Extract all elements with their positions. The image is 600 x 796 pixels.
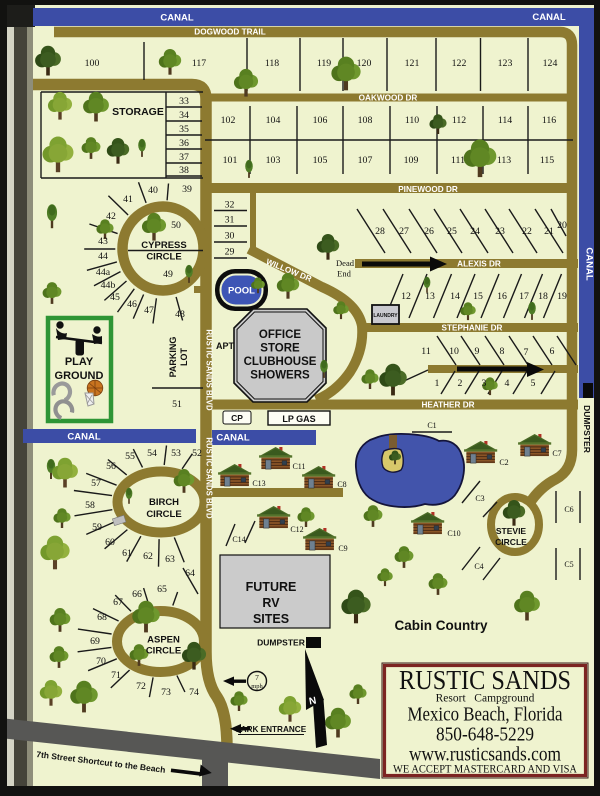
- svg-text:101: 101: [223, 155, 238, 166]
- svg-text:Dead: Dead: [336, 258, 355, 268]
- svg-text:2: 2: [458, 378, 463, 389]
- svg-text:56: 56: [106, 461, 116, 472]
- svg-text:DUMPSTER: DUMPSTER: [257, 638, 305, 648]
- svg-text:ALEXIS DR: ALEXIS DR: [457, 260, 501, 269]
- svg-text:25: 25: [447, 226, 457, 237]
- svg-text:121: 121: [405, 58, 420, 69]
- svg-text:74: 74: [189, 687, 199, 698]
- svg-text:41: 41: [123, 194, 133, 205]
- svg-text:104: 104: [266, 115, 281, 126]
- svg-text:7: 7: [255, 673, 259, 682]
- svg-text:13: 13: [425, 291, 435, 302]
- svg-text:19: 19: [557, 291, 567, 302]
- svg-text:117: 117: [192, 58, 206, 69]
- svg-text:53: 53: [171, 448, 181, 459]
- svg-text:33: 33: [179, 96, 189, 107]
- svg-text:FUTURE: FUTURE: [246, 580, 297, 594]
- svg-text:30: 30: [225, 231, 235, 242]
- svg-text:67: 67: [113, 597, 123, 608]
- svg-text:102: 102: [221, 115, 236, 126]
- svg-text:39: 39: [182, 184, 192, 195]
- svg-text:22: 22: [522, 226, 532, 237]
- svg-text:CANAL: CANAL: [216, 433, 249, 444]
- svg-text:CANAL: CANAL: [160, 13, 193, 24]
- svg-text:DUMPSTER: DUMPSTER: [582, 405, 592, 453]
- svg-text:112: 112: [452, 115, 466, 126]
- svg-text:CP: CP: [231, 413, 243, 423]
- svg-text:58: 58: [85, 500, 95, 511]
- svg-text:RV: RV: [262, 596, 280, 610]
- svg-text:45: 45: [110, 292, 120, 303]
- svg-text:CANAL: CANAL: [67, 432, 100, 443]
- svg-text:5: 5: [531, 378, 536, 389]
- svg-text:12: 12: [401, 291, 411, 302]
- svg-text:44a: 44a: [96, 267, 111, 278]
- svg-text:64: 64: [185, 568, 195, 579]
- svg-text:106: 106: [313, 115, 328, 126]
- svg-text:46: 46: [127, 299, 137, 310]
- svg-text:CANAL: CANAL: [532, 12, 565, 23]
- svg-text:HEATHER DR: HEATHER DR: [421, 401, 474, 410]
- svg-text:27: 27: [399, 226, 409, 237]
- svg-text:21: 21: [544, 226, 554, 237]
- svg-text:DOGWOOD TRAIL: DOGWOOD TRAIL: [194, 28, 265, 37]
- svg-text:17: 17: [519, 291, 529, 302]
- svg-text:ASPEN: ASPEN: [147, 635, 180, 646]
- svg-text:LOT: LOT: [179, 348, 189, 366]
- svg-text:28: 28: [375, 226, 385, 237]
- svg-text:CLUBHOUSE: CLUBHOUSE: [244, 356, 317, 368]
- svg-text:16: 16: [497, 291, 507, 302]
- svg-text:123: 123: [498, 58, 513, 69]
- svg-text:OAKWOOD DR: OAKWOOD DR: [359, 94, 418, 103]
- svg-text:60: 60: [105, 537, 115, 548]
- svg-text:36: 36: [179, 138, 189, 149]
- svg-text:RUSTIC SANDS BLVD: RUSTIC SANDS BLVD: [205, 329, 214, 411]
- svg-text:122: 122: [452, 58, 467, 69]
- svg-text:C6: C6: [564, 505, 573, 514]
- svg-text:62: 62: [143, 551, 153, 562]
- svg-text:STEVIE: STEVIE: [496, 526, 527, 536]
- svg-text:PARKING: PARKING: [168, 337, 178, 378]
- svg-text:26: 26: [424, 226, 434, 237]
- svg-text:66: 66: [132, 589, 142, 600]
- svg-text:SHOWERS: SHOWERS: [250, 370, 310, 382]
- svg-text:105: 105: [313, 155, 328, 166]
- svg-text:CIRCLE: CIRCLE: [146, 252, 181, 263]
- svg-text:63: 63: [165, 554, 175, 565]
- svg-text:10: 10: [449, 346, 459, 357]
- svg-text:RUSTIC SANDS: RUSTIC SANDS: [399, 665, 571, 695]
- svg-text:C11: C11: [292, 462, 305, 471]
- svg-text:124: 124: [543, 58, 558, 69]
- svg-text:6: 6: [550, 346, 555, 357]
- svg-text:BIRCH: BIRCH: [149, 497, 179, 508]
- svg-text:1: 1: [435, 378, 440, 389]
- svg-text:52: 52: [192, 448, 202, 459]
- svg-text:Mexico Beach, Florida: Mexico Beach, Florida: [408, 705, 563, 726]
- svg-text:73: 73: [161, 687, 171, 698]
- svg-text:APT: APT: [216, 341, 235, 351]
- svg-text:C14: C14: [232, 535, 245, 544]
- svg-text:47: 47: [144, 305, 154, 316]
- svg-text:CANAL: CANAL: [584, 247, 595, 280]
- svg-text:55: 55: [125, 451, 135, 462]
- svg-text:C7: C7: [552, 449, 561, 458]
- svg-text:11: 11: [421, 346, 431, 357]
- svg-text:109: 109: [404, 155, 419, 166]
- svg-text:69: 69: [90, 636, 100, 647]
- svg-text:110: 110: [405, 115, 419, 126]
- svg-text:PLAY: PLAY: [65, 356, 94, 368]
- svg-text:107: 107: [358, 155, 373, 166]
- svg-text:43: 43: [98, 236, 108, 247]
- svg-text:34: 34: [179, 110, 189, 121]
- svg-text:STORE: STORE: [260, 343, 300, 355]
- svg-text:29: 29: [225, 247, 235, 258]
- svg-text:3: 3: [482, 378, 487, 389]
- svg-text:44: 44: [98, 251, 108, 262]
- svg-text:C3: C3: [475, 494, 484, 503]
- svg-text:114: 114: [498, 115, 512, 126]
- svg-text:C10: C10: [447, 529, 460, 538]
- svg-text:7: 7: [524, 347, 529, 358]
- svg-text:Cabin Country: Cabin Country: [395, 618, 488, 633]
- svg-text:108: 108: [358, 115, 373, 126]
- svg-text:70: 70: [96, 656, 106, 667]
- svg-text:STEPHANIE DR: STEPHANIE DR: [442, 324, 503, 333]
- svg-text:116: 116: [542, 115, 556, 126]
- svg-text:59: 59: [92, 522, 102, 533]
- svg-text:14: 14: [450, 291, 460, 302]
- svg-text:C12: C12: [290, 525, 303, 534]
- svg-text:WE ACCEPT MASTERCARD AND VISA: WE ACCEPT MASTERCARD AND VISA: [393, 764, 578, 776]
- svg-text:48: 48: [175, 309, 185, 320]
- svg-text:Resort Campground: Resort Campground: [436, 693, 535, 705]
- svg-text:40: 40: [148, 185, 158, 196]
- svg-text:71: 71: [111, 670, 121, 681]
- svg-text:103: 103: [266, 155, 281, 166]
- svg-text:100: 100: [85, 58, 100, 69]
- svg-text:54: 54: [147, 448, 157, 459]
- svg-text:C4: C4: [474, 562, 483, 571]
- svg-text:LAUNDRY: LAUNDRY: [373, 313, 398, 319]
- svg-text:111: 111: [451, 155, 465, 166]
- svg-text:C8: C8: [337, 480, 346, 489]
- svg-text:38: 38: [179, 165, 189, 176]
- svg-text:www.rusticsands.com: www.rusticsands.com: [409, 745, 561, 766]
- svg-text:61: 61: [122, 548, 132, 559]
- svg-text:mph: mph: [251, 683, 263, 690]
- svg-text:37: 37: [179, 152, 189, 163]
- svg-text:850-648-5229: 850-648-5229: [436, 725, 534, 746]
- svg-text:57: 57: [91, 478, 101, 489]
- svg-text:115: 115: [540, 155, 554, 166]
- svg-text:32: 32: [225, 200, 235, 211]
- svg-text:31: 31: [225, 215, 235, 226]
- svg-text:CIRCLE: CIRCLE: [146, 646, 181, 657]
- svg-text:OFFICE: OFFICE: [259, 329, 301, 341]
- svg-text:15: 15: [473, 291, 483, 302]
- svg-text:20: 20: [557, 220, 567, 231]
- svg-text:CIRCLE: CIRCLE: [146, 509, 181, 520]
- svg-text:44b: 44b: [101, 280, 116, 291]
- svg-text:51: 51: [172, 399, 182, 410]
- svg-text:118: 118: [265, 58, 279, 69]
- svg-text:42: 42: [106, 211, 116, 222]
- svg-text:SITES: SITES: [253, 612, 289, 626]
- svg-text:LP GAS: LP GAS: [282, 414, 315, 424]
- svg-text:4: 4: [505, 378, 510, 389]
- svg-text:C9: C9: [338, 544, 347, 553]
- svg-text:C1: C1: [427, 421, 436, 430]
- svg-text:STORAGE: STORAGE: [112, 106, 164, 118]
- svg-text:End: End: [337, 269, 351, 279]
- svg-text:50: 50: [171, 220, 181, 231]
- svg-text:CYPRESS: CYPRESS: [141, 240, 186, 251]
- svg-text:8: 8: [500, 346, 505, 357]
- svg-text:65: 65: [157, 584, 167, 595]
- svg-text:68: 68: [97, 612, 107, 623]
- svg-text:CIRCLE: CIRCLE: [495, 537, 527, 547]
- svg-text:PINEWOOD DR: PINEWOOD DR: [398, 185, 458, 194]
- svg-text:24: 24: [470, 226, 480, 237]
- svg-text:RUSTIC SANDS BLVD: RUSTIC SANDS BLVD: [205, 437, 214, 519]
- svg-text:72: 72: [136, 681, 146, 692]
- svg-text:35: 35: [179, 124, 189, 135]
- svg-text:9: 9: [475, 346, 480, 357]
- svg-text:POOL: POOL: [228, 286, 255, 297]
- svg-text:120: 120: [357, 58, 372, 69]
- svg-text:18: 18: [538, 291, 548, 302]
- svg-text:C5: C5: [564, 560, 573, 569]
- svg-text:C13: C13: [252, 479, 265, 488]
- svg-text:C2: C2: [499, 458, 508, 467]
- svg-text:113: 113: [497, 155, 511, 166]
- svg-text:49: 49: [163, 269, 173, 280]
- svg-text:119: 119: [317, 58, 331, 69]
- svg-text:23: 23: [495, 226, 505, 237]
